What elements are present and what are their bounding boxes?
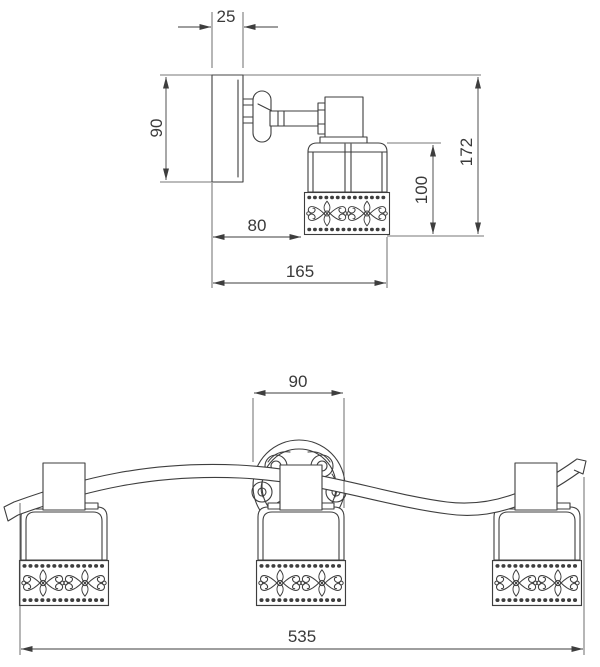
spot-arm [270,103,325,134]
ornate-band-side [305,193,390,235]
ornate-band-center [257,561,346,606]
dim-label-80: 80 [248,216,267,235]
dimension-plate-depth: 25 [178,7,278,68]
dim-label-535: 535 [288,627,316,646]
lamp-shade-center [257,507,346,605]
lamp-housing-center [280,465,322,510]
dimension-total-depth: 165 [213,237,387,288]
lamp-shade-left [20,507,109,605]
dimension-total-height: 172 [387,77,484,236]
dimension-shade-height: 100 [387,143,441,234]
lamp-housing-side [320,97,367,144]
lamp-housing-right [515,463,557,510]
ornate-band-left [20,561,109,606]
lamp-shade-side [305,143,390,235]
wall-plate [212,75,243,182]
dim-label-90-side: 90 [147,119,166,138]
dim-label-90-front: 90 [289,372,308,391]
side-view: 25 90 172 100 80 165 [147,7,484,288]
front-view: 90 535 [4,372,586,655]
dim-label-25: 25 [217,7,236,26]
ornate-band-right [493,561,582,606]
lamp-shade-right [493,507,582,605]
lamp-housing-left [43,463,85,510]
dim-label-165: 165 [286,262,314,281]
technical-drawing-page: 25 90 172 100 80 165 [0,0,600,667]
dim-label-172: 172 [457,138,476,166]
drawing-canvas: 25 90 172 100 80 165 [0,0,600,667]
dim-label-100: 100 [412,176,431,204]
